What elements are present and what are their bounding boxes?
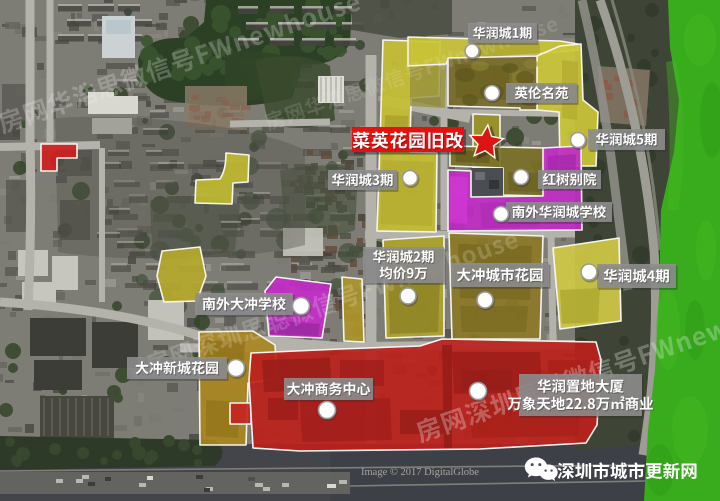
svg-text:Image © 2017 DigitalGlobe: Image © 2017 DigitalGlobe (361, 467, 479, 478)
